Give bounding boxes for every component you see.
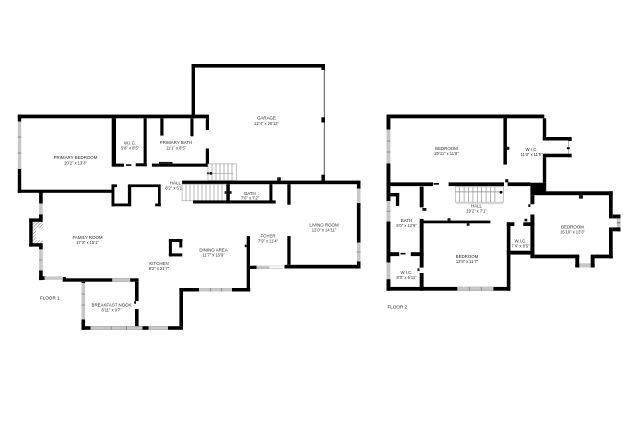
svg-text:20’2” x 13’3”: 20’2” x 13’3”: [64, 161, 87, 166]
svg-text:7’0” x 7’2”: 7’0” x 7’2”: [241, 196, 260, 201]
svg-text:20’11” x 11’8”: 20’11” x 11’8”: [434, 151, 459, 156]
svg-text:13’8” x 11’7”: 13’8” x 11’7”: [456, 259, 479, 264]
svg-text:17’3” x 15’1”: 17’3” x 15’1”: [76, 240, 99, 245]
svg-text:8’11” x 9’7”: 8’11” x 9’7”: [102, 307, 123, 312]
svg-text:GARAGE: GARAGE: [257, 116, 276, 121]
svg-text:6’0” x 12’9”: 6’0” x 12’9”: [396, 223, 417, 228]
svg-text:22’4” x 20’11”: 22’4” x 20’11”: [254, 121, 279, 126]
svg-text:5’8” x 8’5”: 5’8” x 8’5”: [121, 145, 140, 150]
svg-text:11’7” x 15’9”: 11’7” x 15’9”: [202, 252, 225, 257]
svg-text:PRIMARY BATH: PRIMARY BATH: [160, 140, 192, 145]
svg-text:8’2” x 21’7”: 8’2” x 21’7”: [149, 266, 170, 271]
svg-text:8’0” x 5’11”: 8’0” x 5’11”: [397, 275, 418, 280]
svg-text:11’0” x 11’9”: 11’0” x 11’9”: [521, 152, 544, 157]
svg-text:FLOOR 1: FLOOR 1: [40, 296, 60, 301]
svg-text:11’1” x 8’5”: 11’1” x 8’5”: [166, 146, 187, 151]
svg-text:7’4” x 8’5”: 7’4” x 8’5”: [512, 244, 531, 249]
svg-text:7’9” x 11’4”: 7’9” x 11’4”: [258, 239, 279, 244]
svg-text:PRIMARY BEDROOM: PRIMARY BEDROOM: [54, 155, 98, 160]
svg-text:FLOOR 2: FLOOR 2: [388, 305, 408, 310]
svg-text:15’10” x 13’3”: 15’10” x 13’3”: [560, 230, 585, 235]
svg-text:12’0” x 14’11”: 12’0” x 14’11”: [312, 227, 337, 232]
svg-text:19’2” x 7’1”: 19’2” x 7’1”: [466, 209, 487, 214]
